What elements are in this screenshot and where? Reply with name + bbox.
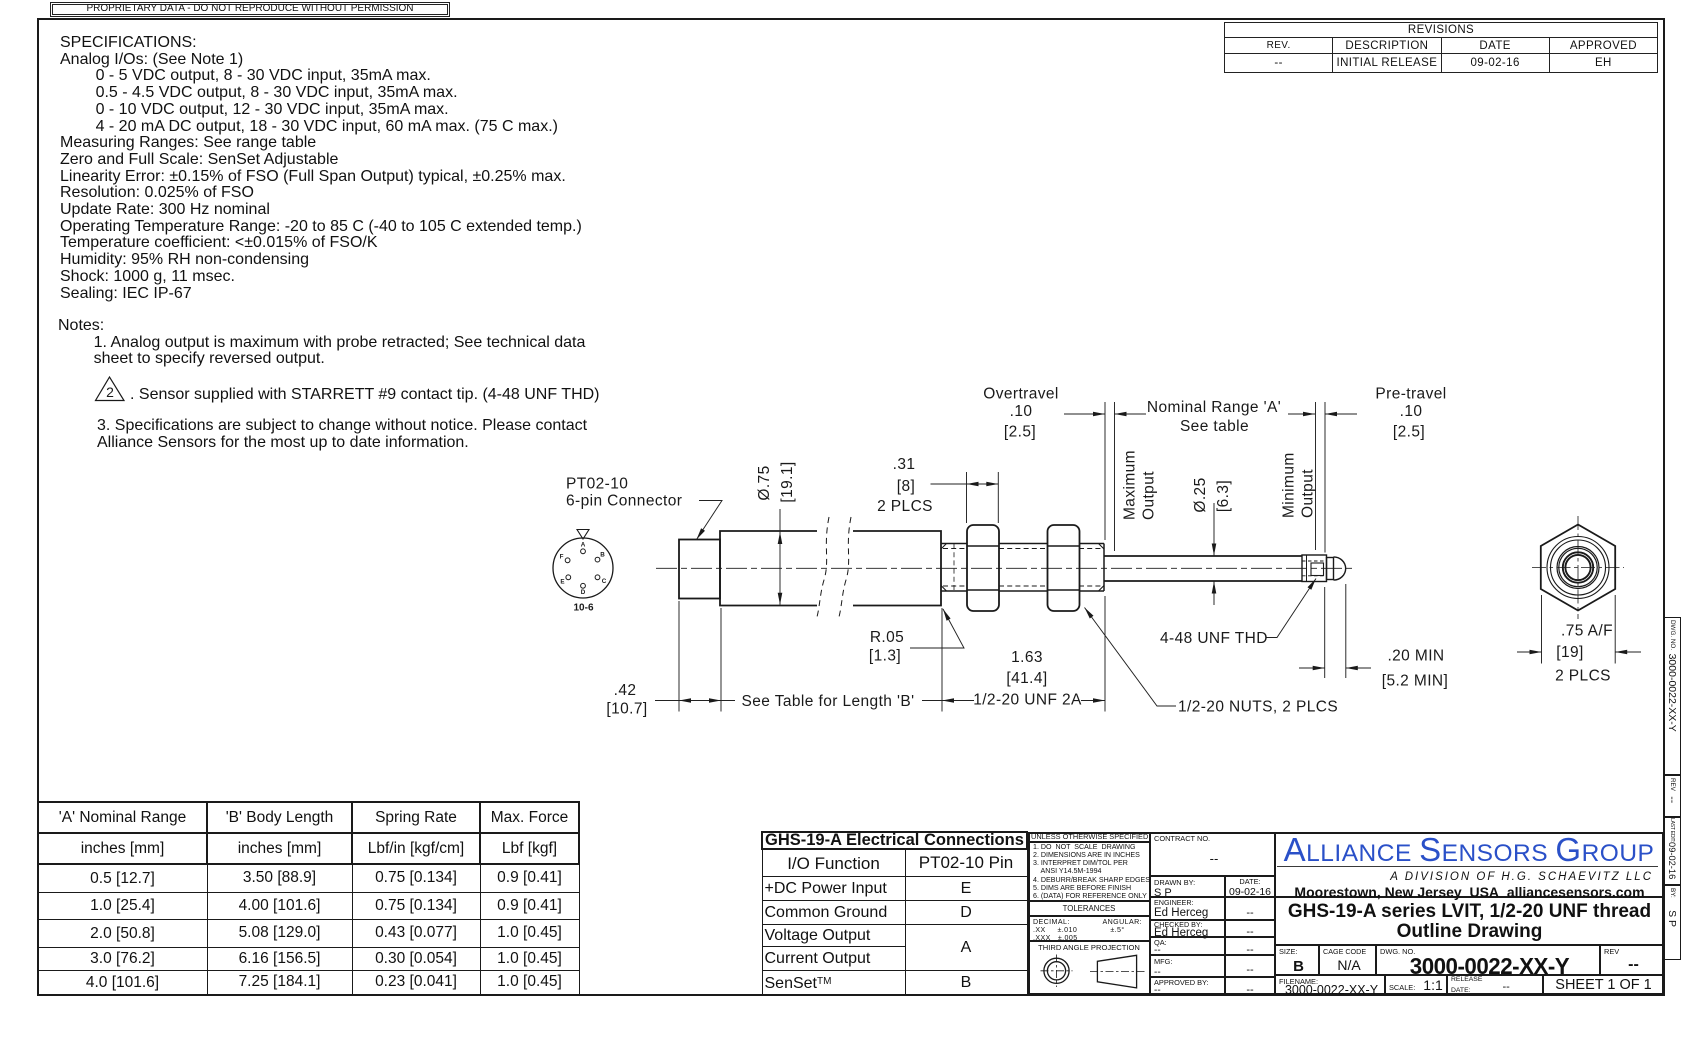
svg-text:PT02-10: PT02-10	[566, 476, 628, 493]
svg-text:[2.5]: [2.5]	[1004, 424, 1036, 441]
svg-text:4-48 UNF THD: 4-48 UNF THD	[1160, 630, 1268, 647]
svg-text:.10: .10	[1010, 403, 1033, 420]
svg-text:.42: .42	[614, 682, 637, 699]
svg-text:1.63: 1.63	[1011, 649, 1043, 666]
svg-text:6-pin Connector: 6-pin Connector	[566, 493, 682, 510]
svg-text:.10: .10	[1400, 403, 1423, 420]
svg-text:B: B	[600, 552, 605, 559]
svg-text:E: E	[560, 579, 564, 586]
svg-text:[10.7]: [10.7]	[606, 701, 647, 718]
svg-text:Nominal Range 'A': Nominal Range 'A'	[1147, 399, 1281, 416]
svg-text:Output: Output	[1300, 469, 1317, 518]
svg-text:Minimum: Minimum	[1281, 452, 1298, 518]
svg-text:D: D	[581, 589, 586, 596]
svg-text:1/2-20 UNF 2A: 1/2-20 UNF 2A	[973, 692, 1082, 709]
svg-text:2 PLCS: 2 PLCS	[1555, 668, 1611, 685]
svg-text:Pre-travel: Pre-travel	[1375, 386, 1446, 403]
svg-text:2: 2	[106, 384, 114, 400]
svg-text:[2.5]: [2.5]	[1393, 424, 1425, 441]
svg-text:1/2-20 NUTS, 2 PLCS: 1/2-20 NUTS, 2 PLCS	[1178, 699, 1338, 716]
svg-text:Ø.75: Ø.75	[756, 465, 773, 500]
svg-text:C: C	[602, 578, 607, 585]
svg-text:[19.1]: [19.1]	[779, 461, 796, 502]
svg-text:See table: See table	[1180, 418, 1249, 435]
svg-text:Output: Output	[1141, 471, 1158, 520]
svg-text:[41.4]: [41.4]	[1006, 670, 1047, 687]
svg-text:Overtravel: Overtravel	[983, 386, 1059, 403]
svg-text:Ø.25: Ø.25	[1192, 477, 1209, 512]
svg-text:10-6: 10-6	[573, 603, 593, 614]
svg-text:See Table for Length 'B': See Table for Length 'B'	[742, 693, 915, 710]
svg-text:Maximum: Maximum	[1122, 450, 1139, 520]
svg-text:R.05: R.05	[870, 629, 904, 646]
svg-text:[6.3]: [6.3]	[1215, 480, 1232, 512]
svg-text:[5.2 MIN]: [5.2 MIN]	[1382, 673, 1448, 690]
svg-text:.31: .31	[893, 456, 916, 473]
svg-text:F: F	[560, 554, 564, 561]
svg-text:.20 MIN: .20 MIN	[1387, 648, 1444, 665]
svg-text:[8]: [8]	[897, 478, 915, 495]
svg-text:.75 A/F: .75 A/F	[1561, 623, 1613, 640]
svg-text:A: A	[581, 542, 586, 549]
svg-text:[1.3]: [1.3]	[869, 648, 901, 665]
svg-text:[19]: [19]	[1556, 644, 1583, 661]
svg-text:2 PLCS: 2 PLCS	[877, 498, 933, 515]
